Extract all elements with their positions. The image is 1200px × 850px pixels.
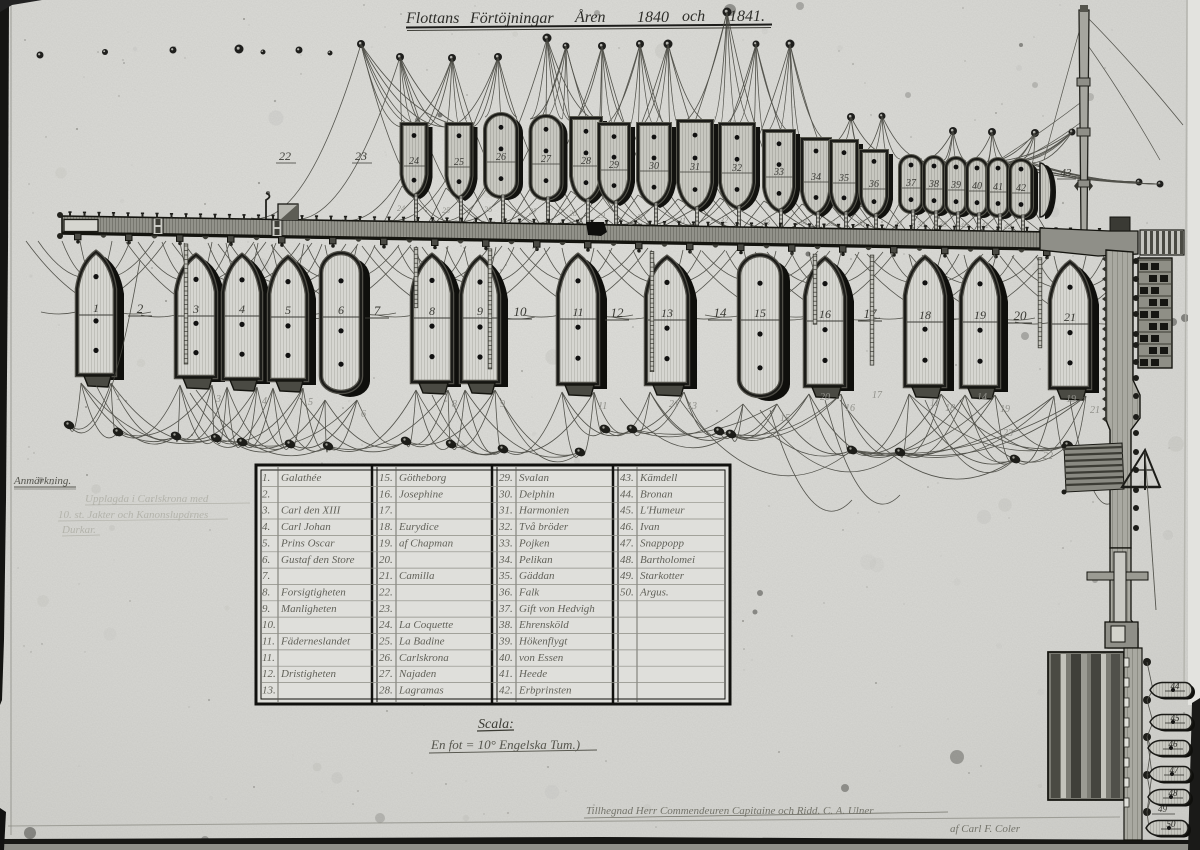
svg-text:Heede: Heede (518, 668, 547, 680)
svg-text:von Essen: von Essen (519, 652, 564, 664)
svg-text:34: 34 (798, 218, 807, 227)
svg-text:27.: 27. (379, 668, 393, 680)
svg-text:35: 35 (838, 173, 849, 184)
svg-text:Gustaf den Store: Gustaf den Store (281, 554, 355, 566)
svg-text:27: 27 (529, 207, 538, 216)
svg-text:Erbprinsten: Erbprinsten (518, 685, 572, 697)
svg-text:26: 26 (484, 205, 492, 214)
svg-text:19.: 19. (379, 537, 393, 549)
svg-text:1: 1 (93, 301, 99, 315)
svg-text:Pojken: Pojken (518, 537, 550, 549)
svg-text:45.: 45. (620, 505, 634, 517)
svg-text:14: 14 (714, 305, 728, 320)
svg-text:8.: 8. (262, 587, 270, 599)
svg-text:Gäddan: Gäddan (519, 570, 555, 582)
svg-text:42: 42 (1016, 183, 1026, 194)
svg-text:49.: 49. (620, 570, 634, 582)
svg-text:1: 1 (116, 392, 121, 403)
svg-text:Dristigheten: Dristigheten (280, 668, 336, 680)
svg-text:39: 39 (950, 180, 961, 191)
svg-text:18: 18 (919, 308, 931, 322)
svg-text:Delphin: Delphin (518, 488, 555, 500)
svg-text:17: 17 (872, 390, 883, 401)
svg-text:Bartholomei: Bartholomei (640, 554, 695, 566)
svg-text:28.: 28. (379, 685, 393, 697)
svg-text:43.: 43. (620, 472, 634, 484)
svg-text:Manligheten: Manligheten (280, 603, 337, 615)
svg-text:37.: 37. (498, 603, 513, 615)
svg-text:L'Humeur: L'Humeur (639, 505, 685, 517)
svg-text:30.: 30. (498, 488, 513, 500)
svg-text:8: 8 (429, 304, 435, 318)
svg-text:Prins Oscar: Prins Oscar (280, 537, 335, 549)
svg-text:37: 37 (893, 220, 903, 229)
svg-text:19: 19 (1066, 394, 1076, 405)
svg-text:21: 21 (1064, 310, 1076, 324)
svg-text:Snappopp: Snappopp (640, 537, 685, 549)
svg-text:36: 36 (868, 179, 879, 190)
svg-text:20: 20 (1014, 308, 1028, 323)
svg-text:31: 31 (689, 162, 700, 173)
svg-text:46.: 46. (620, 521, 634, 533)
svg-text:16: 16 (845, 403, 855, 414)
svg-text:46: 46 (1169, 739, 1179, 749)
svg-text:12: 12 (611, 305, 625, 320)
svg-text:1841.: 1841. (729, 8, 765, 25)
svg-text:15: 15 (754, 306, 766, 320)
svg-text:22: 22 (1043, 451, 1053, 462)
svg-text:33.: 33. (498, 537, 513, 549)
svg-text:23: 23 (1003, 428, 1013, 439)
svg-text:22.: 22. (379, 587, 393, 599)
svg-text:Fäderneslandet: Fäderneslandet (280, 636, 351, 648)
svg-text:15.: 15. (379, 472, 393, 484)
svg-text:11.: 11. (262, 652, 275, 664)
svg-text:Lagramas: Lagramas (398, 685, 444, 697)
svg-text:34: 34 (810, 172, 821, 183)
svg-text:38: 38 (928, 179, 939, 190)
svg-text:Harmonien: Harmonien (518, 505, 570, 517)
svg-text:Argus.: Argus. (639, 587, 669, 599)
svg-text:Najaden: Najaden (398, 668, 437, 680)
svg-text:27: 27 (541, 154, 552, 165)
svg-text:42: 42 (1004, 222, 1012, 231)
svg-text:Carl den XIII: Carl den XIII (281, 505, 342, 517)
svg-text:32.: 32. (498, 521, 513, 533)
svg-text:44: 44 (1171, 681, 1181, 691)
svg-text:3: 3 (192, 302, 199, 316)
svg-text:25.: 25. (379, 636, 393, 648)
svg-text:Två bröder: Två bröder (519, 521, 569, 533)
svg-text:29.: 29. (499, 472, 513, 484)
svg-text:13: 13 (687, 401, 697, 412)
svg-text:Ivan: Ivan (639, 521, 660, 533)
svg-text:41: 41 (981, 221, 989, 230)
svg-text:21: 21 (669, 399, 679, 410)
svg-text:40: 40 (972, 181, 982, 192)
svg-text:49: 49 (1158, 804, 1168, 814)
svg-text:En fot = 10° Engelska Tum.): En fot = 10° Engelska Tum.) (430, 737, 580, 752)
svg-text:6: 6 (338, 303, 344, 317)
svg-text:39.: 39. (498, 636, 513, 648)
svg-text:16.: 16. (379, 488, 393, 500)
svg-text:36: 36 (856, 219, 865, 228)
svg-text:35: 35 (826, 219, 835, 228)
svg-text:19: 19 (1000, 404, 1010, 415)
svg-text:13: 13 (661, 306, 673, 320)
svg-text:24.: 24. (379, 619, 393, 631)
svg-text:37: 37 (905, 178, 917, 189)
svg-text:9: 9 (477, 304, 483, 318)
svg-text:8: 8 (452, 399, 457, 410)
svg-text:16: 16 (819, 307, 831, 321)
svg-text:50.: 50. (620, 587, 634, 599)
svg-text:24: 24 (397, 204, 405, 213)
svg-text:La Coquette: La Coquette (398, 619, 453, 631)
svg-text:af Chapman: af Chapman (399, 537, 454, 549)
svg-text:Bronan: Bronan (640, 488, 673, 500)
svg-text:Ehrensköld: Ehrensköld (518, 619, 569, 631)
svg-text:och: och (682, 8, 705, 25)
svg-text:11: 11 (598, 401, 607, 412)
svg-text:Josephine: Josephine (399, 488, 443, 500)
svg-text:26: 26 (496, 152, 506, 163)
svg-text:48.: 48. (620, 554, 634, 566)
svg-text:Camilla: Camilla (399, 570, 435, 582)
svg-text:af Carl F. Coler: af Carl F. Coler (950, 823, 1021, 835)
svg-text:48: 48 (1169, 788, 1179, 798)
svg-text:21: 21 (1090, 405, 1100, 416)
svg-text:Eurydice: Eurydice (398, 521, 439, 533)
svg-text:15: 15 (780, 413, 790, 424)
svg-text:7: 7 (374, 303, 381, 318)
svg-text:9: 9 (500, 399, 505, 410)
svg-text:2: 2 (137, 301, 144, 316)
svg-text:41.: 41. (499, 668, 513, 680)
svg-text:29: 29 (597, 211, 605, 220)
svg-text:26.: 26. (379, 652, 393, 664)
svg-text:22: 22 (279, 149, 291, 163)
svg-text:12.: 12. (262, 668, 276, 680)
svg-text:5.: 5. (262, 537, 270, 549)
svg-text:5: 5 (285, 303, 291, 317)
svg-text:11: 11 (930, 398, 939, 409)
svg-text:Förtöjningar: Förtöjningar (469, 10, 554, 27)
svg-text:Forsigtigheten: Forsigtigheten (280, 587, 346, 599)
svg-text:20.: 20. (379, 554, 393, 566)
svg-text:4: 4 (239, 302, 245, 316)
svg-text:28: 28 (581, 156, 591, 167)
svg-text:Upplagda i Carlskrona med: Upplagda i Carlskrona med (85, 493, 209, 505)
svg-text:13.: 13. (262, 685, 276, 697)
svg-text:Gift von Hedvigh: Gift von Hedvigh (519, 603, 595, 615)
svg-text:5: 5 (308, 397, 313, 408)
svg-text:24: 24 (409, 156, 419, 167)
svg-text:Falk: Falk (518, 587, 540, 599)
svg-text:Pelikan: Pelikan (518, 554, 553, 566)
svg-text:Kämdell: Kämdell (639, 472, 677, 484)
svg-text:19: 19 (974, 308, 986, 322)
svg-text:11: 11 (572, 305, 583, 319)
svg-text:Flottans: Flottans (405, 10, 459, 27)
svg-text:38.: 38. (498, 619, 513, 631)
svg-text:31.: 31. (498, 505, 513, 517)
svg-text:Götheborg: Götheborg (399, 472, 447, 484)
svg-text:34.: 34. (498, 554, 513, 566)
svg-text:40: 40 (960, 221, 968, 230)
svg-text:18.: 18. (379, 521, 393, 533)
svg-text:3: 3 (215, 394, 221, 405)
svg-text:17.: 17. (379, 505, 393, 517)
svg-text:30: 30 (636, 213, 645, 222)
svg-text:Svalan: Svalan (519, 472, 549, 484)
svg-text:4: 4 (262, 396, 267, 407)
svg-text:43: 43 (1061, 167, 1073, 179)
svg-text:35.: 35. (498, 570, 513, 582)
svg-text:25: 25 (454, 157, 464, 168)
svg-text:45: 45 (1171, 713, 1181, 723)
svg-text:Carl Johan: Carl Johan (281, 521, 331, 533)
svg-text:6: 6 (361, 409, 366, 420)
svg-text:10: 10 (514, 304, 528, 319)
svg-text:36.: 36. (498, 587, 513, 599)
svg-text:Durkar.: Durkar. (61, 524, 96, 536)
svg-text:33: 33 (773, 167, 784, 178)
svg-text:3.: 3. (261, 505, 270, 517)
svg-text:25: 25 (442, 206, 450, 215)
svg-text:30: 30 (648, 161, 659, 172)
svg-text:Åren: Åren (574, 8, 606, 26)
svg-text:50: 50 (1167, 819, 1177, 829)
svg-text:Carlskrona: Carlskrona (399, 652, 449, 664)
svg-text:47.: 47. (620, 537, 634, 549)
svg-text:18: 18 (945, 403, 955, 414)
svg-text:9.: 9. (262, 603, 270, 615)
svg-text:6.: 6. (262, 554, 270, 566)
svg-text:40.: 40. (499, 652, 513, 664)
svg-text:28: 28 (569, 209, 577, 218)
svg-text:2.: 2. (262, 488, 270, 500)
svg-text:44.: 44. (620, 488, 634, 500)
svg-text:7.: 7. (262, 570, 270, 582)
svg-text:1.: 1. (262, 472, 270, 484)
svg-text:14: 14 (977, 392, 987, 403)
svg-text:11.: 11. (262, 636, 275, 648)
svg-text:42.: 42. (499, 685, 513, 697)
svg-text:32: 32 (731, 163, 742, 174)
svg-text:Hökenflygt: Hökenflygt (518, 636, 568, 648)
svg-text:1840: 1840 (637, 9, 669, 26)
svg-text:38: 38 (916, 220, 925, 229)
svg-text:23.: 23. (379, 603, 393, 615)
svg-text:10.: 10. (262, 619, 276, 631)
svg-text:Starkotter: Starkotter (640, 570, 685, 582)
svg-text:47: 47 (1170, 765, 1180, 775)
svg-text:4.: 4. (262, 521, 270, 533)
svg-text:La Badine: La Badine (398, 636, 445, 648)
svg-text:Anmärkning.: Anmärkning. (13, 475, 71, 487)
svg-text:41: 41 (993, 182, 1003, 193)
svg-text:20: 20 (820, 392, 830, 403)
svg-text:21.: 21. (379, 570, 393, 582)
svg-text:29: 29 (609, 160, 619, 171)
svg-text:23: 23 (355, 149, 367, 163)
svg-text:Galathée: Galathée (281, 472, 321, 484)
